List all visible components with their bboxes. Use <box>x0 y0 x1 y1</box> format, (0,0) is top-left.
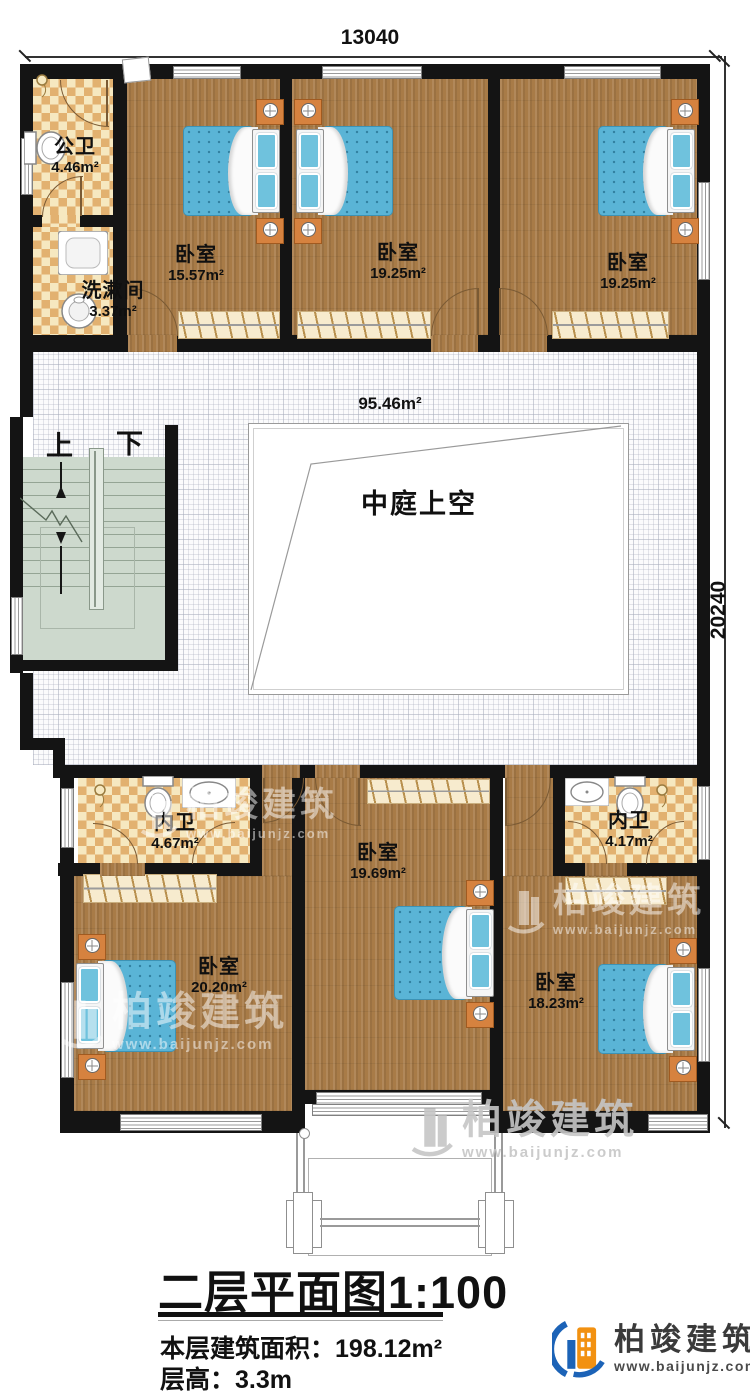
stair-label-down: 下 <box>116 422 143 461</box>
door-leaf <box>505 778 507 825</box>
title-underline <box>158 1312 443 1317</box>
stair-arrow-down <box>56 532 66 544</box>
bed-pillow <box>256 173 277 209</box>
bed-pillow <box>470 953 491 989</box>
corner-fold <box>122 57 151 84</box>
wardrobe <box>178 311 280 339</box>
window-right-bedroom-br <box>698 968 710 1062</box>
nightstand <box>669 938 697 964</box>
shower-hook <box>92 782 112 808</box>
door-leaf <box>80 176 82 216</box>
door-opening-ensuiteR <box>585 863 627 876</box>
title-underline-thin <box>158 1320 443 1321</box>
door-leaf <box>477 288 479 335</box>
bed-pillow <box>470 913 491 949</box>
atrium-slant-lines <box>249 424 628 694</box>
nightstand <box>256 218 284 244</box>
label-bedroom-bottom-left: 卧室 20.20m² <box>159 956 279 996</box>
nightstand <box>256 99 284 125</box>
bed-pillow <box>299 173 320 209</box>
label-bedroom-top-left: 卧室 15.57m² <box>136 244 256 284</box>
label-bedroom-bottom-mid: 卧室 19.69m² <box>318 842 438 882</box>
window-right-ensuite <box>698 786 710 860</box>
balcony-slab <box>308 1158 492 1256</box>
stair-arrow-line-up <box>60 462 62 488</box>
wall-ensuiteR-bottom <box>553 863 710 876</box>
bed-pillow <box>256 133 277 169</box>
wardrobe <box>552 311 669 339</box>
company-logo-url: www.baijunjz.com <box>614 1358 750 1374</box>
wardrobe <box>297 311 431 339</box>
door-opening-ensuiteL <box>100 863 145 876</box>
stair-label-up: 上 <box>46 424 73 463</box>
balcony-column-left-core <box>293 1192 313 1254</box>
bed-pillow <box>671 1011 692 1047</box>
dimension-top-value: 13040 <box>310 26 430 50</box>
nightstand <box>294 99 322 125</box>
shower-hook <box>34 72 54 98</box>
window-bottom-left <box>120 1114 262 1131</box>
window-top-3 <box>564 66 661 79</box>
wall-ensuiteR-left <box>553 778 565 863</box>
wall-left-mid <box>20 360 33 417</box>
label-washroom: 洗漱间 3.37m² <box>53 280 173 320</box>
nightstand <box>669 1056 697 1082</box>
window-stairwell <box>11 597 23 655</box>
window-left-bedroom <box>61 982 74 1078</box>
nightstand <box>466 1002 494 1028</box>
balcony-column-right-core <box>485 1192 505 1254</box>
wardrobe <box>367 779 490 804</box>
bed-pillow <box>671 173 692 209</box>
window-left-ensuite <box>61 788 74 848</box>
nightstand <box>671 99 699 125</box>
basin-ensuite-right <box>565 778 609 806</box>
stair-handrail-line <box>94 451 96 607</box>
floor-plan: 上 下 中庭上空 95.46m² <box>0 0 750 1391</box>
company-logo: 柏竣建筑 www.baijunjz.com <box>552 1320 750 1378</box>
wall-bl-mid <box>292 765 305 1133</box>
dimension-right-value: 20240 <box>707 560 731 660</box>
bed-pillow <box>79 1007 100 1043</box>
wall-stair-right <box>165 425 178 671</box>
label-bedroom-top-mid: 卧室 19.25m² <box>338 242 458 282</box>
dimension-top-line <box>25 56 722 58</box>
drawing-scale: 1:100 <box>388 1267 508 1318</box>
door-leaf <box>106 80 108 126</box>
stair-arrow-line-down <box>60 546 62 594</box>
nightstand <box>78 934 106 960</box>
company-logo-name: 柏竣建筑 <box>614 1324 750 1355</box>
nightstand <box>78 1054 106 1080</box>
window-top-2 <box>322 66 422 79</box>
bed-top-left <box>183 126 280 216</box>
wall-ensuiteL-right <box>250 778 262 863</box>
door-leaf <box>499 288 501 335</box>
door-opening-bedroom3 <box>500 335 547 352</box>
wall-left-upper <box>20 64 33 360</box>
door-opening-br-entry <box>505 765 550 778</box>
door-opening-bl-entry <box>262 765 300 778</box>
drawing-title-text: 二层平面图 <box>158 1267 388 1318</box>
floor-height-label: 层高： <box>160 1366 235 1391</box>
door-opening-bedroom1 <box>128 335 177 352</box>
bed-pillow <box>299 133 320 169</box>
stair-handrail <box>89 448 104 610</box>
window-bottom-right <box>648 1114 708 1131</box>
window-bottom-mid-threshold <box>312 1104 490 1116</box>
bed-pillow <box>79 967 100 1003</box>
stair-break-line <box>20 490 84 548</box>
balcony-railing <box>320 1218 480 1220</box>
bed-bottom-mid <box>394 906 494 1000</box>
balcony-railing <box>320 1225 480 1227</box>
wardrobe <box>565 877 667 905</box>
door-leaf <box>358 778 360 825</box>
bed-top-mid <box>296 126 393 216</box>
floor-area-label: 本层建筑面积： <box>160 1335 335 1363</box>
window-right-bedroom3 <box>698 182 710 280</box>
wardrobe <box>83 874 217 903</box>
floor-height-value: 3.3m <box>235 1366 292 1391</box>
nightstand <box>671 218 699 244</box>
label-public-bath: 公卫 4.46m² <box>15 136 135 176</box>
shower-hook <box>654 782 674 808</box>
label-ensuite-left: 内卫 4.67m² <box>115 812 235 852</box>
door-leaf <box>263 778 265 822</box>
door-opening-mid-entry <box>315 765 360 778</box>
floor-height-line: 层高：3.3m <box>160 1360 292 1391</box>
atrium-void: 中庭上空 <box>248 423 629 695</box>
nightstand <box>466 880 494 906</box>
atrium-label: 中庭上空 <box>344 482 494 521</box>
bed-pillow <box>671 971 692 1007</box>
hall-area-label: 95.46m² <box>330 394 450 414</box>
washer-washroom <box>58 231 108 275</box>
label-ensuite-right: 内卫 4.17m² <box>569 810 689 850</box>
window-top-1 <box>173 66 241 79</box>
company-logo-icon <box>552 1320 606 1378</box>
label-bedroom-bottom-right: 卧室 18.23m² <box>496 972 616 1012</box>
bed-top-right <box>598 126 695 216</box>
bed-pillow <box>671 133 692 169</box>
door-opening-bedroom2 <box>431 335 478 352</box>
balcony-detail-circle <box>299 1128 310 1139</box>
label-bedroom-top-right: 卧室 19.25m² <box>568 252 688 292</box>
floor-area-value: 198.12m² <box>335 1335 442 1363</box>
basin-ensuite-left <box>182 778 236 808</box>
nightstand <box>294 218 322 244</box>
wall-left-lower <box>20 673 33 738</box>
